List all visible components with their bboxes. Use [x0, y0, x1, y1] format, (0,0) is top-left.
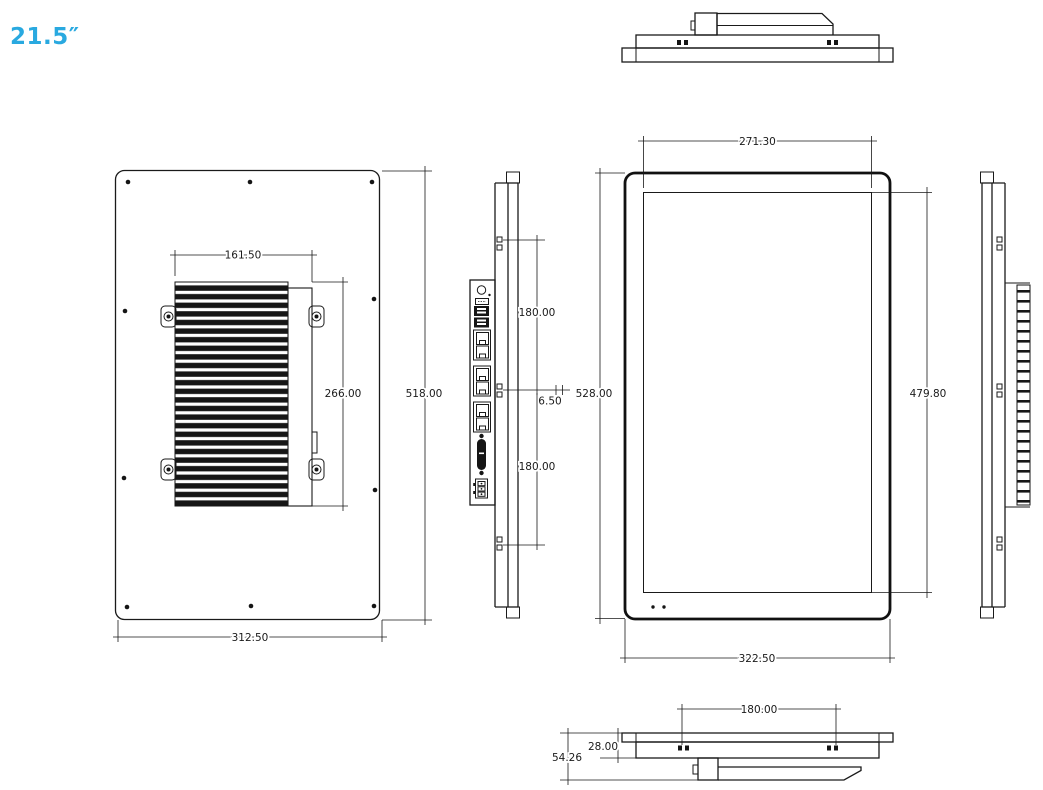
bottom-glass-bar	[622, 733, 893, 742]
top-view-vesa-hole-marks	[677, 40, 838, 45]
dim-heatsink-height: 266.00	[312, 277, 361, 511]
right-heatsink-fin-ladder	[1017, 285, 1030, 505]
dim-vesa-span-upper: 180.00	[503, 235, 570, 395]
front-view: 271.30 528.00 479.80 322.50	[576, 136, 947, 665]
hdmi-port-icon	[476, 299, 489, 305]
mounting-ear	[161, 306, 176, 327]
bottom-view: 180.00 28.00 54.26	[552, 704, 893, 785]
dim-hole-offset: 6.50	[538, 385, 562, 408]
dim-label: 322.50	[739, 653, 776, 665]
dim-body-height: 518.00	[382, 166, 442, 625]
heatsink-side-tab	[312, 432, 317, 453]
dim-label: 518.00	[406, 388, 443, 400]
dim-display-width: 271.30	[638, 136, 877, 188]
bottom-compute-module	[693, 758, 861, 780]
dim-label: 271.30	[739, 136, 776, 148]
power-terminal-icon	[473, 479, 487, 498]
dim-display-height: 479.80	[872, 187, 946, 598]
dim-label: 28.00	[588, 741, 618, 753]
right-housing-line	[992, 183, 1005, 607]
dvi-port-icon	[477, 434, 486, 475]
power-led-icon	[488, 294, 490, 296]
bottom-vesa-hole-marks	[678, 746, 838, 751]
bottom-connector-nub	[693, 765, 698, 774]
mounting-ear	[161, 459, 176, 480]
dim-label: 180.00	[519, 461, 556, 473]
front-bezel-outline	[625, 173, 890, 619]
dim-heatsink-width: 161.50	[170, 250, 317, 283]
dim-label: 180.00	[519, 307, 556, 319]
dim-label: 161.50	[225, 250, 262, 262]
display-area	[644, 193, 872, 593]
dimension-drawing: 161.50 266.00 518.00 312.50	[0, 0, 1043, 790]
dim-label: 180.00	[741, 704, 778, 716]
panel-pc-dimension-sheet: 21.5″	[0, 0, 1043, 790]
top-view-compute-module	[691, 13, 833, 35]
right-top-endcap	[981, 172, 994, 183]
right-bottom-endcap	[981, 607, 994, 618]
bottom-glass-endcaps	[636, 733, 879, 742]
side-glass-body	[508, 183, 518, 607]
dim-label: 54.26	[552, 752, 582, 764]
left-side-view: 180.00 6.50 180.00	[470, 172, 570, 618]
dim-front-width: 322.50	[620, 619, 895, 665]
bottom-housing-bar	[636, 742, 879, 758]
power-button-icon	[477, 286, 485, 294]
top-view-glass-bar	[622, 48, 893, 62]
top-view	[622, 13, 893, 62]
dim-body-width: 312.50	[113, 620, 387, 644]
side-bottom-endcap	[507, 607, 520, 618]
io-ports	[473, 286, 490, 498]
dim-front-height: 528.00	[576, 168, 625, 624]
right-vesa-hole-marks	[997, 237, 1002, 550]
heatsink-fins	[175, 282, 288, 506]
back-view: 161.50 266.00 518.00 312.50	[113, 166, 442, 644]
dim-bottom-vesa-span: 180.00	[677, 704, 841, 745]
led-indicator-dots	[651, 605, 665, 608]
right-side-view	[981, 172, 1031, 618]
lan-ports-icon	[474, 330, 491, 432]
dim-label: 6.50	[538, 396, 561, 408]
top-view-glass-endcaps	[636, 48, 879, 62]
dim-total-depth: 54.26	[552, 728, 698, 785]
right-glass-body	[982, 183, 992, 607]
dim-label: 528.00	[576, 388, 613, 400]
dim-label: 479.80	[910, 388, 947, 400]
side-top-endcap	[507, 172, 520, 183]
heatsink-mounting-plate	[288, 288, 312, 506]
dim-vesa-span-lower: 180.00	[503, 393, 555, 550]
top-view-housing-bar	[636, 35, 879, 48]
usb-ports-icon	[474, 306, 489, 328]
side-vesa-hole-marks	[497, 237, 502, 550]
dim-label: 266.00	[325, 388, 362, 400]
dim-label: 312.50	[232, 632, 269, 644]
